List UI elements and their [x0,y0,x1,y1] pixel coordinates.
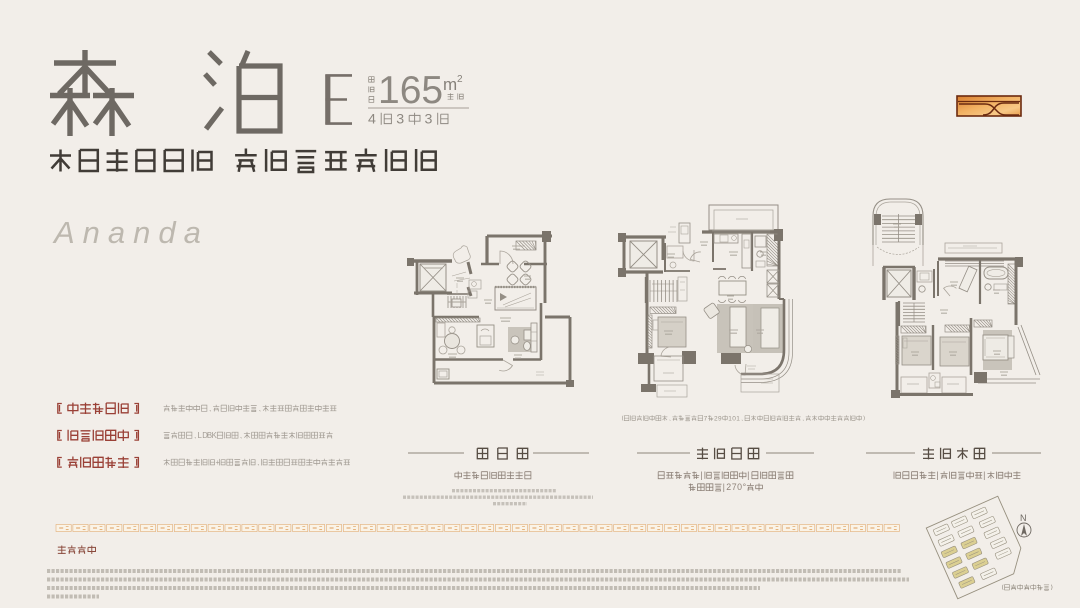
svg-text:K: K [212,431,218,440]
svg-text:2: 2 [457,74,463,85]
svg-text:|: | [700,470,702,480]
svg-text:°: ° [743,482,747,492]
svg-text:3: 3 [396,112,404,128]
svg-text:165: 165 [378,69,443,112]
svg-text:7: 7 [732,482,737,492]
svg-text:2: 2 [726,482,731,492]
svg-text:N: N [1020,513,1027,523]
svg-text:7: 7 [704,415,708,422]
svg-text:|: | [747,470,749,480]
svg-text:4: 4 [368,112,376,128]
svg-text:|: | [983,470,985,480]
svg-text:+: + [216,458,221,467]
svg-text:3: 3 [425,112,433,128]
svg-text:1: 1 [736,415,740,422]
svg-text:|: | [723,482,725,492]
svg-text:Ananda: Ananda [52,215,209,250]
svg-text:m: m [443,75,457,94]
svg-text:9: 9 [718,415,722,422]
svg-text:|: | [936,470,938,480]
svg-text:0: 0 [737,482,742,492]
